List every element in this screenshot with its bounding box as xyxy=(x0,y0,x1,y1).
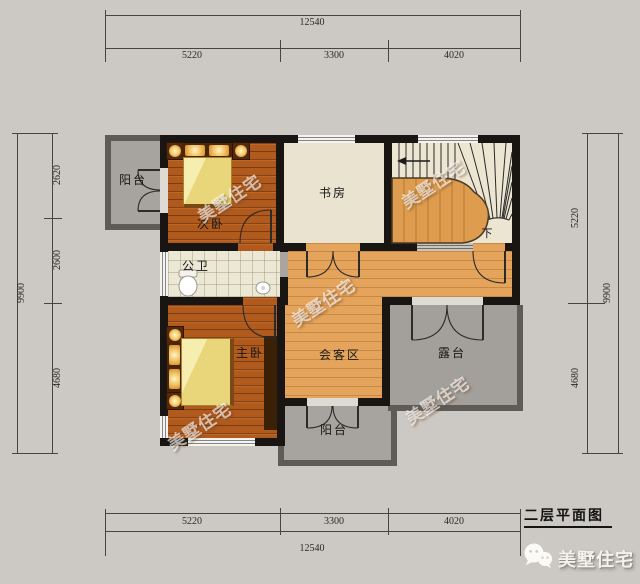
toilet-fixture xyxy=(179,270,197,296)
label-stairs-down: 下 xyxy=(478,227,498,241)
title-underline xyxy=(524,526,612,528)
plan-title: 二层平面图 xyxy=(524,505,616,525)
label-terrace: 露台 xyxy=(428,346,476,360)
label-study: 书房 xyxy=(309,186,357,200)
label-master: 主卧 xyxy=(226,346,274,360)
label-living: 会客区 xyxy=(304,348,376,362)
label-balcony-bottom: 阳台 xyxy=(310,423,358,437)
floor-plan-page: 12540 5220 3300 4020 5220 3300 4020 1254… xyxy=(0,0,640,584)
brand-text: 美墅住宅 xyxy=(558,546,634,572)
wechat-icon xyxy=(522,541,556,573)
label-bathroom: 公卫 xyxy=(172,259,220,273)
sink-fixture xyxy=(256,282,270,294)
brand-logo-row: 美墅住宅 xyxy=(522,541,640,577)
label-balcony-top: 阳台 xyxy=(111,173,155,187)
